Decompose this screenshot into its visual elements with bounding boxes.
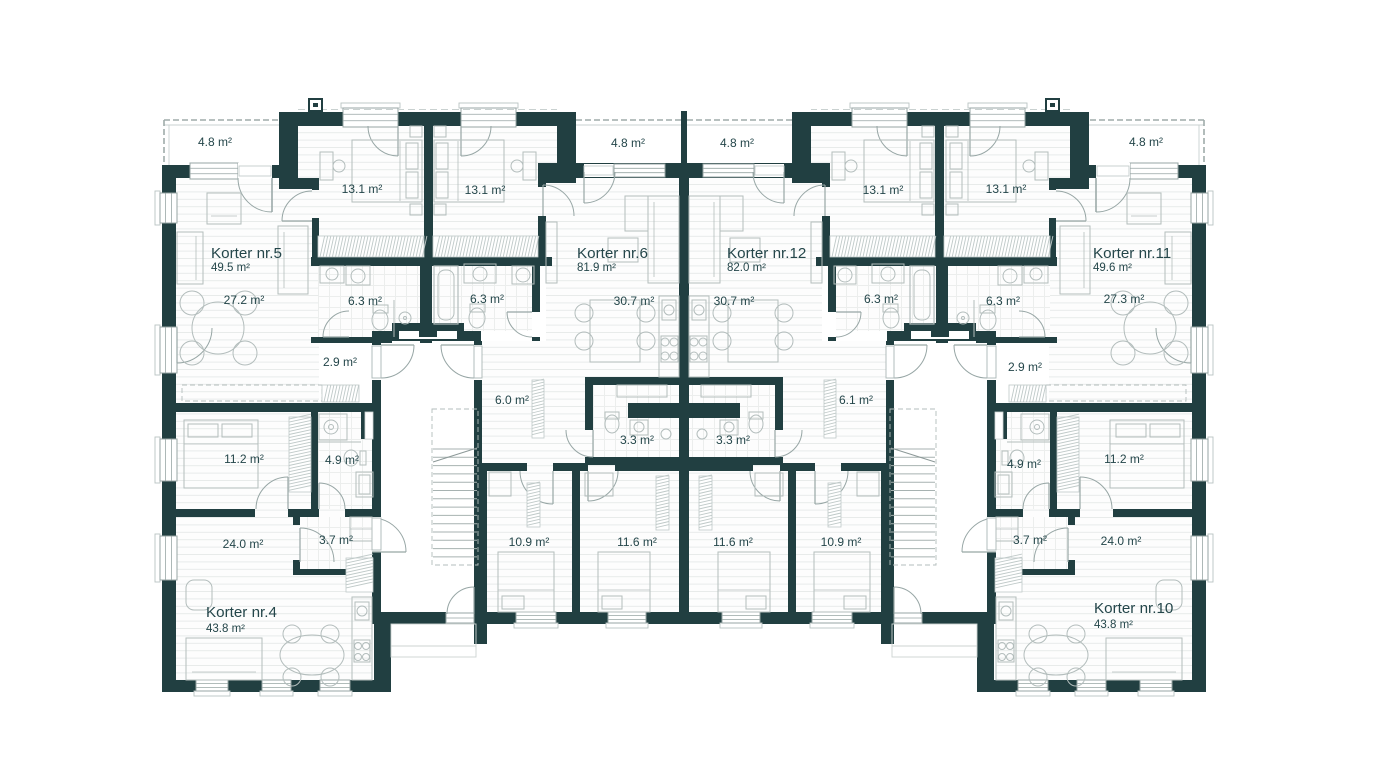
- svg-text:11.2 m²: 11.2 m²: [224, 452, 264, 466]
- svg-text:3.7 m²: 3.7 m²: [1013, 533, 1047, 547]
- svg-text:2.9 m²: 2.9 m²: [1008, 360, 1042, 374]
- svg-text:13.1 m²: 13.1 m²: [465, 183, 506, 197]
- svg-text:3.3 m²: 3.3 m²: [716, 433, 750, 447]
- svg-text:3.7 m²: 3.7 m²: [319, 533, 353, 547]
- svg-text:30.7 m²: 30.7 m²: [614, 294, 655, 308]
- svg-text:4.8 m²: 4.8 m²: [611, 136, 645, 150]
- svg-text:11.6 m²: 11.6 m²: [617, 535, 657, 549]
- svg-text:Korter nr.12: Korter nr.12: [727, 245, 806, 262]
- svg-text:Korter nr.4: Korter nr.4: [206, 604, 277, 621]
- svg-text:49.5 m²: 49.5 m²: [211, 262, 250, 274]
- svg-text:6.1 m²: 6.1 m²: [839, 393, 873, 407]
- svg-text:2.9 m²: 2.9 m²: [323, 355, 357, 369]
- svg-text:6.3 m²: 6.3 m²: [986, 294, 1020, 308]
- svg-text:13.1 m²: 13.1 m²: [986, 182, 1027, 196]
- svg-text:4.9 m²: 4.9 m²: [325, 453, 359, 467]
- svg-text:6.3 m²: 6.3 m²: [864, 292, 898, 306]
- svg-text:10.9 m²: 10.9 m²: [509, 535, 550, 549]
- svg-text:43.8 m²: 43.8 m²: [1094, 619, 1133, 631]
- svg-text:6.3 m²: 6.3 m²: [348, 294, 382, 308]
- svg-text:6.3 m²: 6.3 m²: [470, 292, 504, 306]
- svg-text:Korter nr.10: Korter nr.10: [1094, 600, 1173, 617]
- svg-text:Korter nr.5: Korter nr.5: [211, 245, 282, 262]
- svg-text:4.8 m²: 4.8 m²: [720, 136, 754, 150]
- svg-text:27.2 m²: 27.2 m²: [224, 293, 265, 307]
- svg-text:82.0 m²: 82.0 m²: [727, 262, 766, 274]
- svg-text:13.1 m²: 13.1 m²: [863, 183, 904, 197]
- svg-text:81.9 m²: 81.9 m²: [577, 262, 616, 274]
- svg-text:30.7 m²: 30.7 m²: [714, 294, 755, 308]
- svg-text:11.2 m²: 11.2 m²: [1104, 452, 1144, 466]
- svg-text:49.6 m²: 49.6 m²: [1093, 262, 1132, 274]
- svg-text:13.1 m²: 13.1 m²: [342, 182, 383, 196]
- svg-text:24.0 m²: 24.0 m²: [223, 537, 264, 551]
- svg-text:4.8 m²: 4.8 m²: [198, 135, 232, 149]
- svg-text:3.3 m²: 3.3 m²: [620, 433, 654, 447]
- svg-text:4.8 m²: 4.8 m²: [1129, 135, 1163, 149]
- svg-text:4.9 m²: 4.9 m²: [1007, 457, 1041, 471]
- svg-text:Korter nr.6: Korter nr.6: [577, 245, 648, 262]
- svg-text:10.9 m²: 10.9 m²: [821, 535, 862, 549]
- svg-text:24.0 m²: 24.0 m²: [1101, 534, 1142, 548]
- svg-text:6.0 m²: 6.0 m²: [495, 393, 529, 407]
- svg-text:Korter nr.11: Korter nr.11: [1093, 245, 1171, 262]
- svg-text:43.8 m²: 43.8 m²: [206, 623, 245, 635]
- svg-text:11.6 m²: 11.6 m²: [713, 535, 753, 549]
- svg-text:27.3 m²: 27.3 m²: [1104, 292, 1145, 306]
